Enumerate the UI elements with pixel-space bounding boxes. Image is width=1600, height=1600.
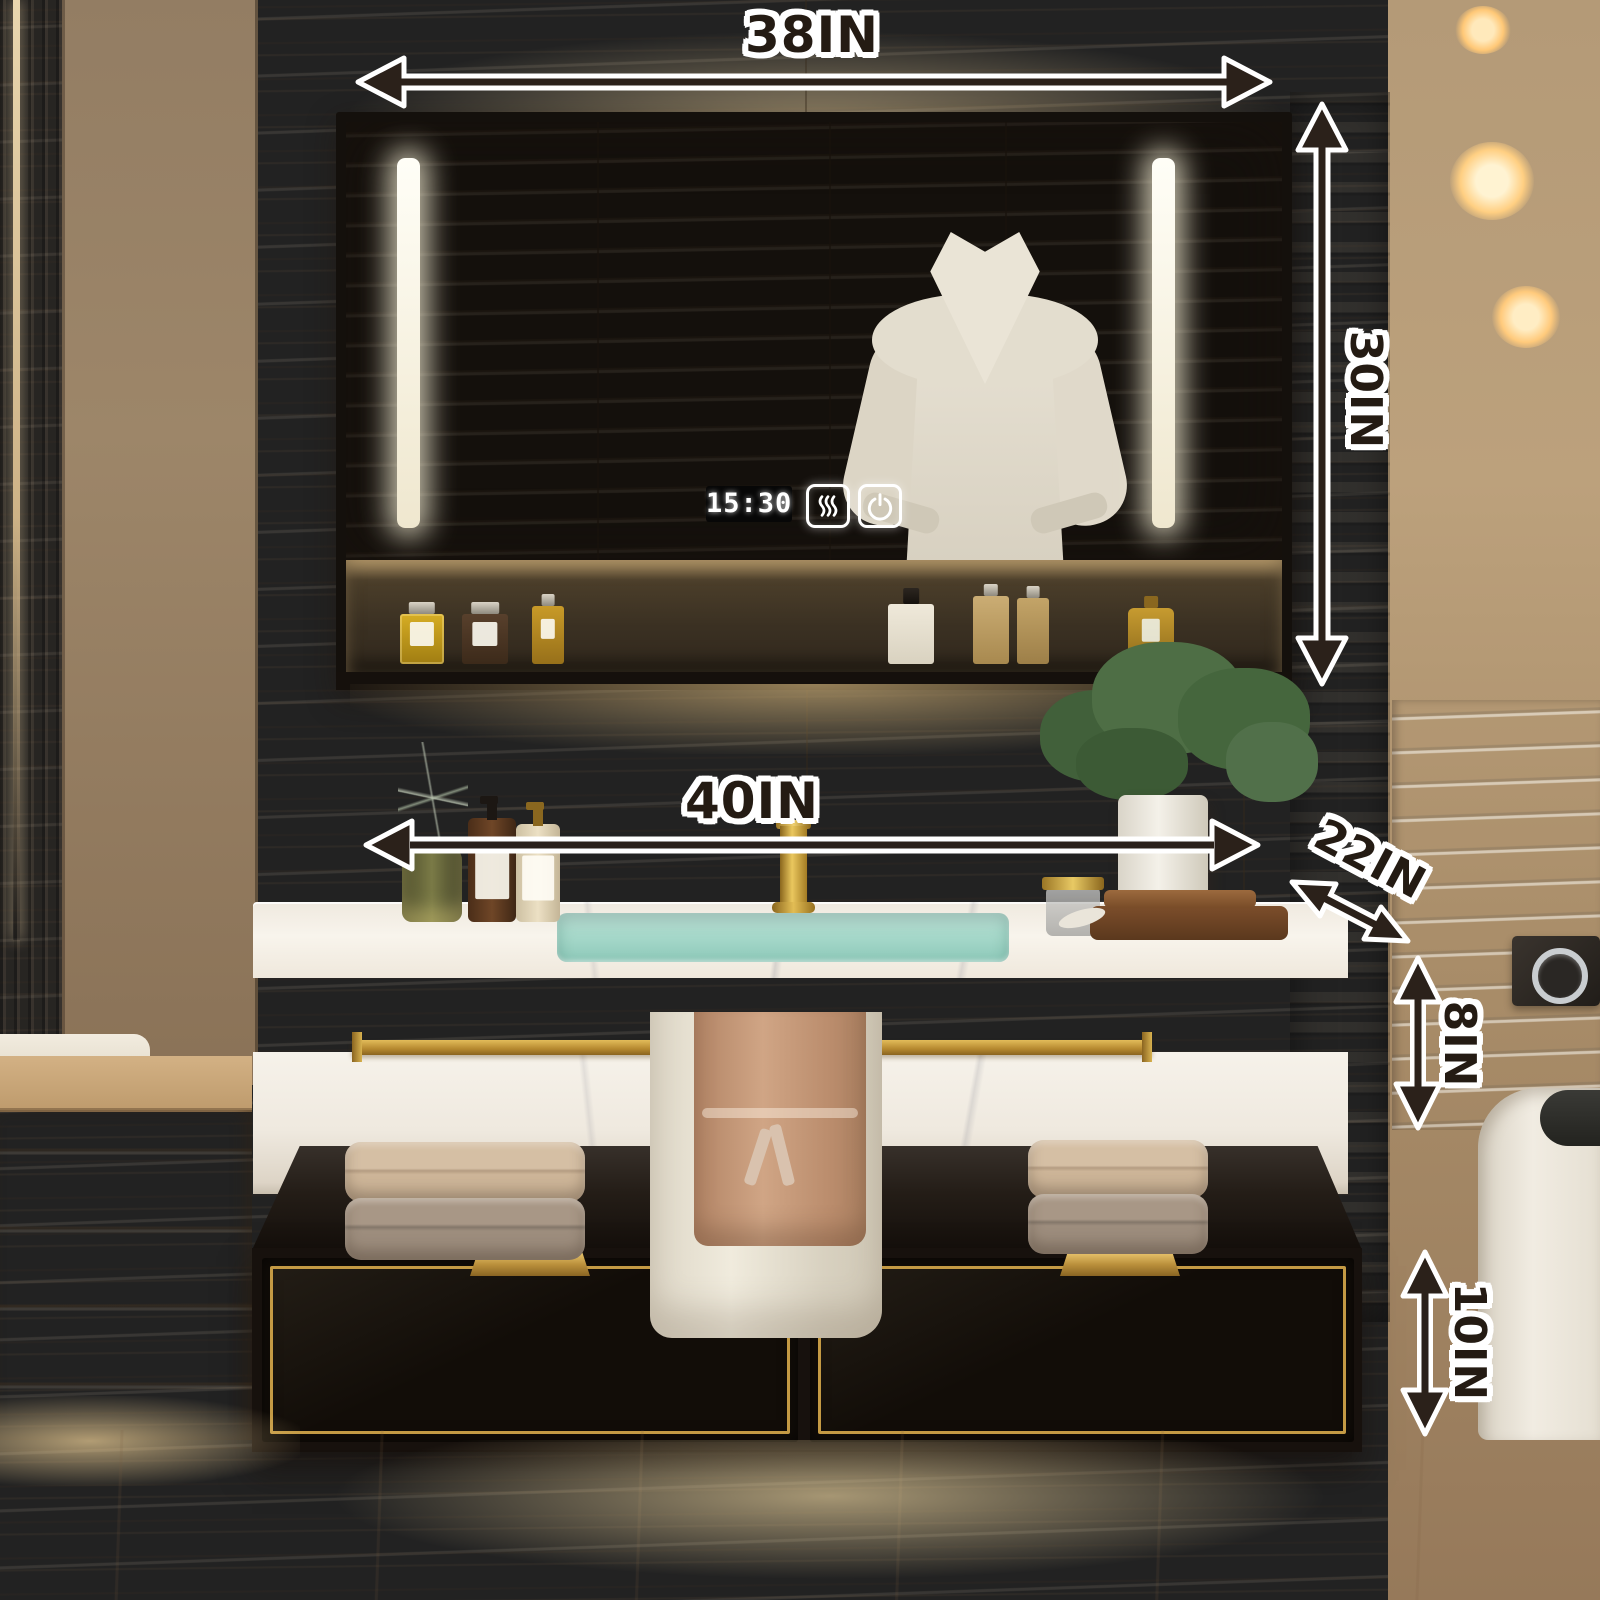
mirror-cabinet-doors: 15:30 <box>346 122 1282 560</box>
dimension-label-10in: 10IN <box>1447 1259 1491 1425</box>
dimension-label-40in: 40IN <box>632 776 872 826</box>
soap-dispenser-cream <box>516 824 560 922</box>
side-bench <box>0 1110 252 1440</box>
folded-towel <box>345 1142 585 1202</box>
defogger-glyph <box>812 490 844 522</box>
bathtub-rim <box>1540 1090 1600 1146</box>
folded-towel <box>1028 1140 1208 1198</box>
led-strip-left <box>397 158 420 528</box>
dimension-label-30in: 30IN <box>1343 307 1387 473</box>
bottle-cap <box>409 602 435 614</box>
dispenser-pump <box>487 796 497 820</box>
glass-vase <box>402 846 462 922</box>
decor-sprigs <box>398 742 468 852</box>
dispenser-label <box>522 855 554 900</box>
bottle-cap <box>984 584 998 596</box>
plant-foliage <box>1076 728 1188 800</box>
drawer-right[interactable] <box>810 1258 1354 1442</box>
folded-towel <box>1028 1194 1208 1254</box>
plant-foliage <box>1226 722 1318 802</box>
soap-bars <box>1104 890 1256 908</box>
sink-basin <box>557 913 1009 962</box>
soap-dispenser-brown <box>468 818 516 922</box>
wavy-tile-panel <box>1392 700 1600 1130</box>
bathroom-product-photo: 15:30 <box>0 0 1600 1600</box>
perfume-bottle-dark <box>462 614 508 664</box>
wall-light <box>1450 142 1534 220</box>
dimension-label-38in: 38IN <box>692 10 932 60</box>
bottle-label <box>472 622 497 646</box>
towel-fold-highlight <box>702 1108 858 1118</box>
bottle-tan-tall <box>1017 598 1049 664</box>
left-light-strip <box>13 0 20 940</box>
bottle-cap <box>471 602 499 614</box>
power-glyph <box>864 490 896 522</box>
led-strip-right <box>1152 158 1175 528</box>
bottle-label <box>410 622 434 646</box>
bottle-cap <box>903 588 919 604</box>
towel-stack-left <box>345 1142 585 1260</box>
side-bench-top <box>0 1056 252 1112</box>
mirror-door-seam <box>597 122 599 560</box>
bottle-cap <box>542 594 555 606</box>
towel-bar-bracket <box>352 1032 362 1062</box>
bottle-label <box>541 619 555 639</box>
wall-light <box>1455 6 1511 54</box>
bottle-cap <box>1027 586 1040 598</box>
towel-stack-right <box>1028 1140 1208 1254</box>
wooden-tray <box>1090 906 1288 940</box>
left-tile-wall <box>0 0 62 1085</box>
perfume-bottle-yellow <box>400 614 444 664</box>
flush-button[interactable] <box>1532 948 1588 1004</box>
towel-bar-bracket <box>1142 1032 1152 1062</box>
clock-display: 15:30 <box>706 486 792 522</box>
power-icon[interactable] <box>858 484 902 528</box>
bottle-label <box>1142 619 1160 641</box>
left-wall-tile <box>62 0 258 1085</box>
wall-light <box>1492 286 1560 348</box>
faucet[interactable] <box>780 826 807 910</box>
defogger-icon[interactable] <box>806 484 850 528</box>
glass-jar-lid <box>1042 877 1104 890</box>
dispenser-pump <box>533 802 543 826</box>
floor-glow <box>330 1440 1330 1580</box>
perfume-bottle-gold <box>532 606 564 664</box>
dimension-label-8in: 8IN <box>1437 971 1481 1117</box>
bottle-white-box <box>888 604 934 664</box>
folded-towel <box>345 1198 585 1260</box>
faucet-base <box>772 902 815 913</box>
dispenser-label <box>475 851 509 899</box>
bottle-tan-tall <box>973 596 1009 664</box>
dispenser-pump <box>1144 596 1158 608</box>
